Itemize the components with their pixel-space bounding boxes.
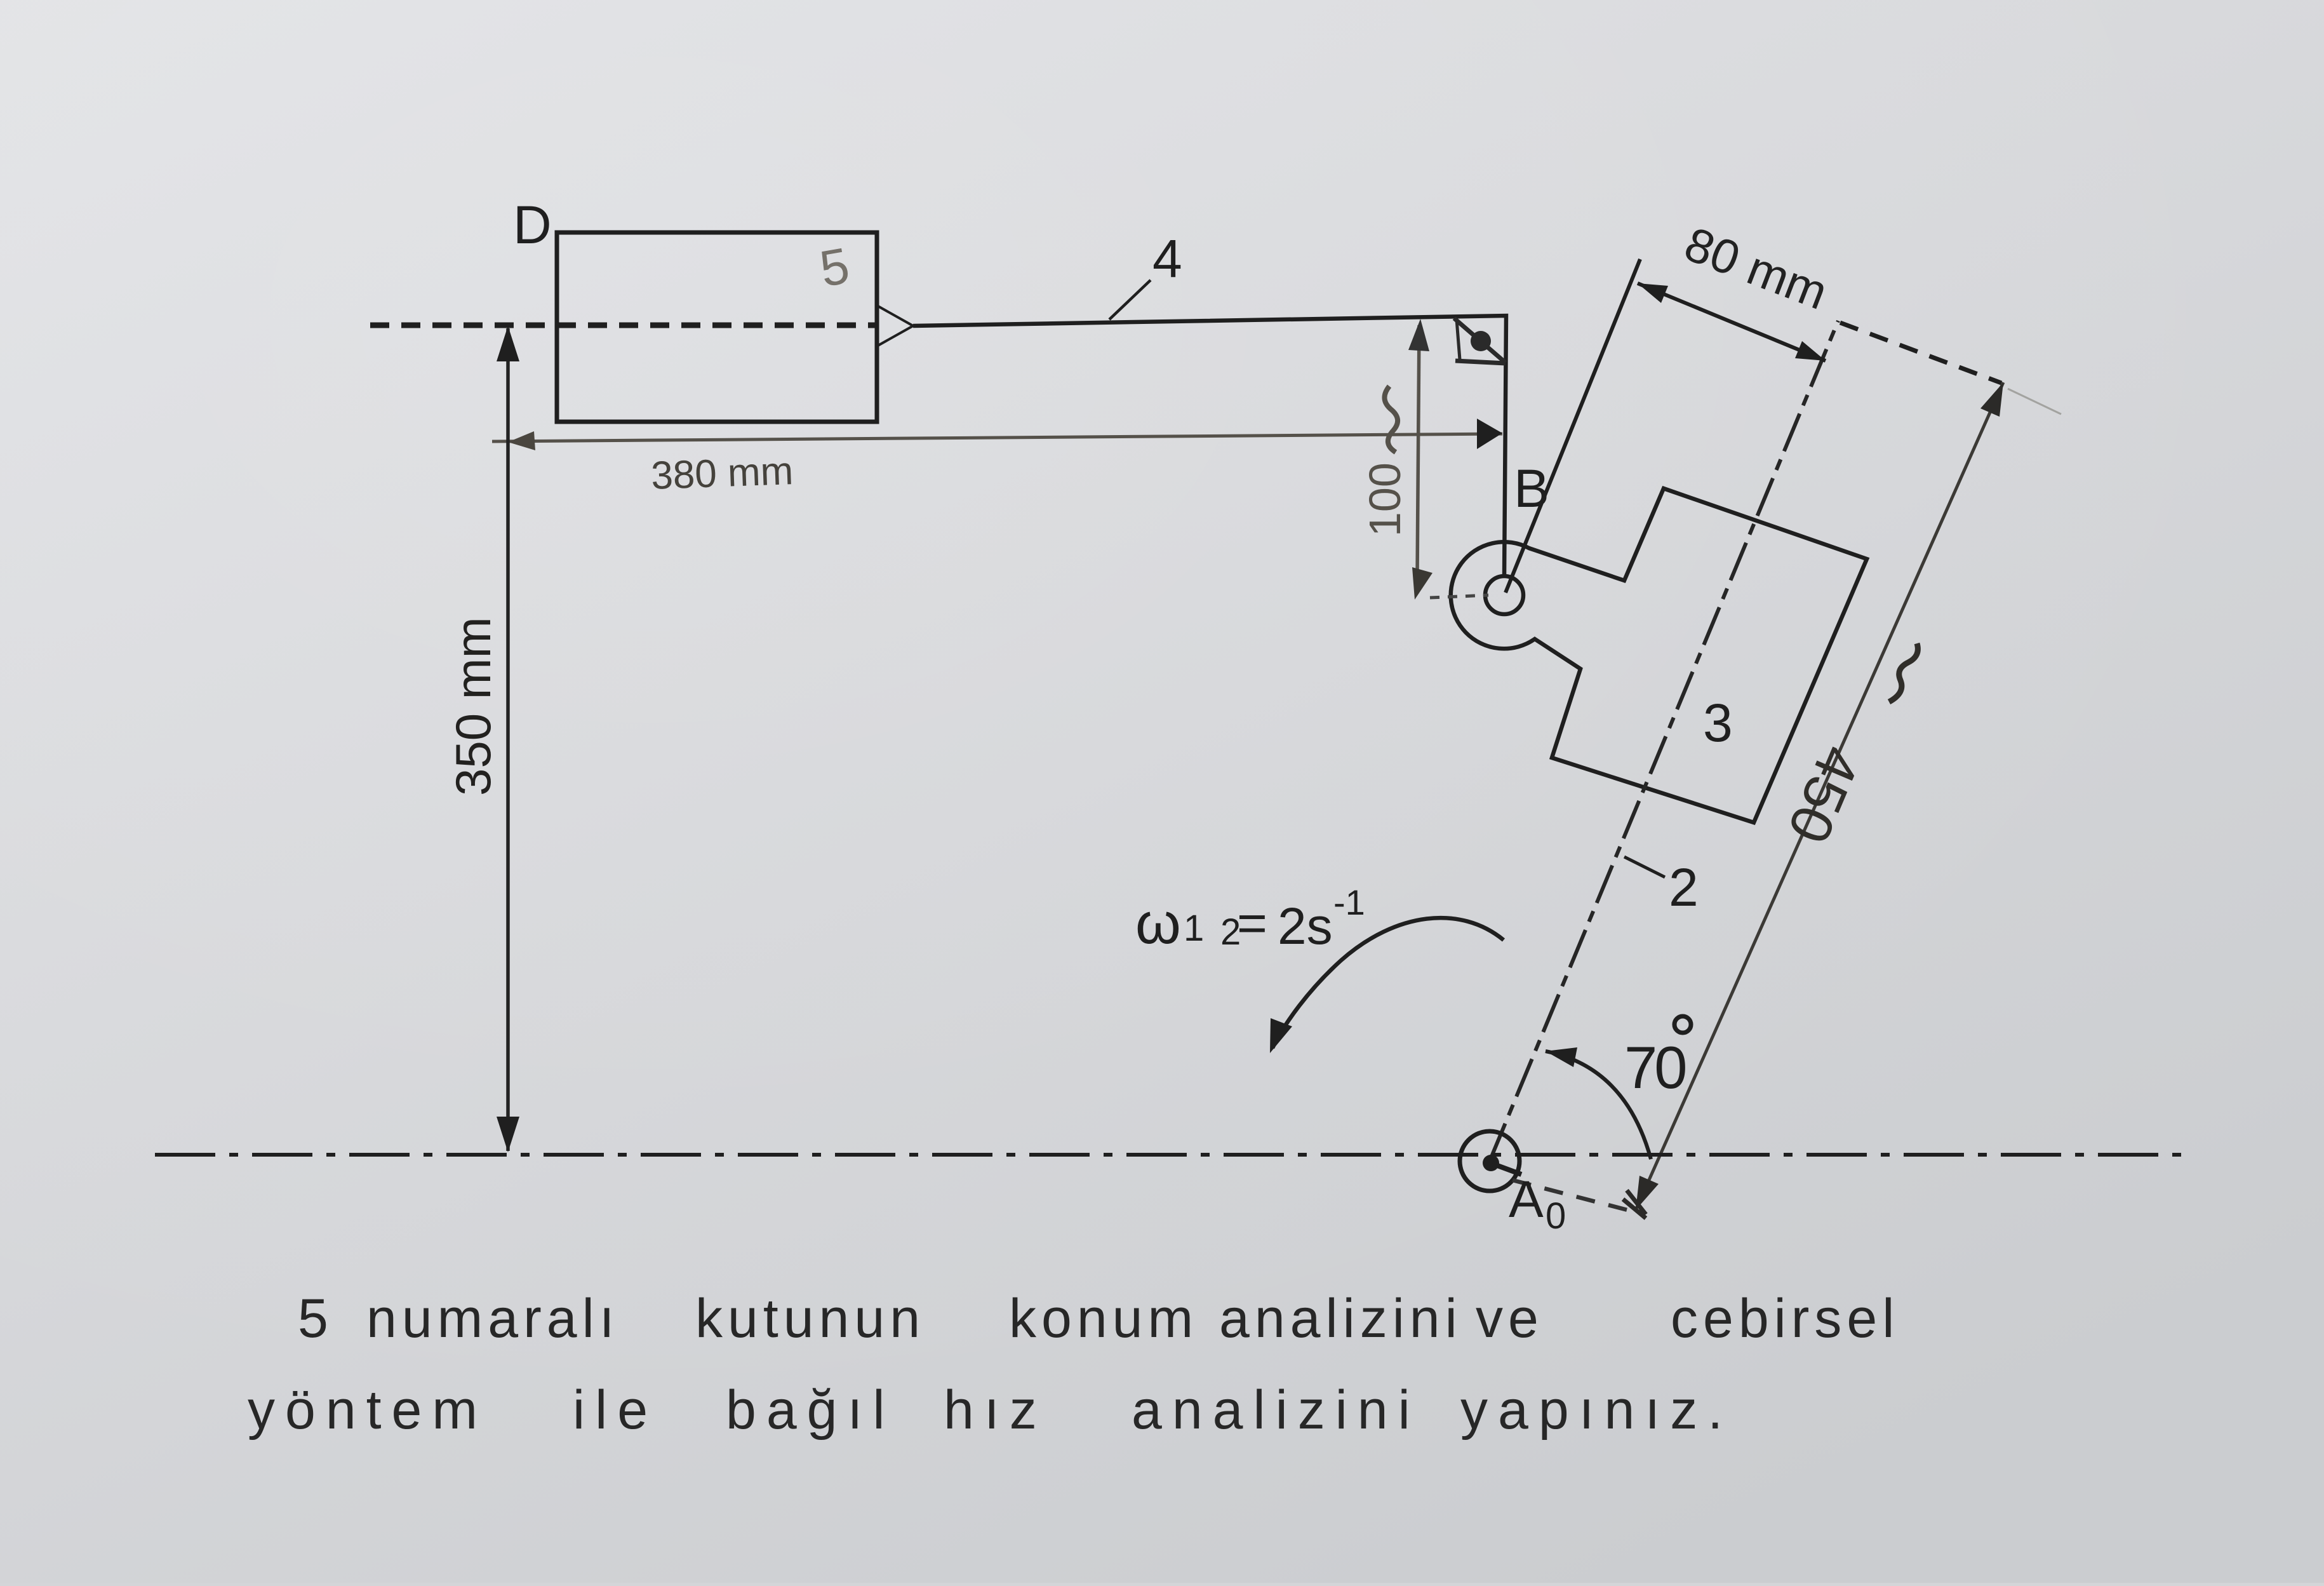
svg-text:4: 4	[1152, 229, 1182, 288]
svg-text:kutunun: kutunun	[695, 1288, 925, 1349]
svg-text:5: 5	[298, 1288, 333, 1349]
svg-text:bağıl: bağıl	[726, 1380, 895, 1441]
svg-text:analizini: analizini	[1219, 1288, 1462, 1349]
svg-text:1: 1	[1184, 908, 1204, 949]
svg-text:ile: ile	[573, 1380, 658, 1441]
svg-text:numaralı: numaralı	[366, 1288, 620, 1349]
svg-text:3: 3	[1703, 693, 1733, 753]
svg-text:cebirsel: cebirsel	[1671, 1288, 1899, 1349]
svg-text:yöntem: yöntem	[248, 1380, 488, 1441]
svg-text:hız: hız	[944, 1380, 1047, 1441]
svg-text:380 mm: 380 mm	[650, 449, 794, 498]
svg-text:D: D	[513, 195, 552, 255]
svg-text:A: A	[1509, 1171, 1544, 1228]
svg-text:analizini: analizini	[1132, 1380, 1420, 1441]
svg-text:konum: konum	[1009, 1288, 1198, 1349]
svg-text:0: 0	[1546, 1195, 1566, 1237]
svg-text:ve: ve	[1476, 1288, 1544, 1349]
svg-text:350 mm: 350 mm	[445, 617, 501, 796]
svg-text:=: =	[1237, 894, 1267, 952]
svg-text:-1: -1	[1333, 882, 1365, 922]
svg-text:ω: ω	[1135, 891, 1181, 956]
svg-text:B: B	[1514, 459, 1549, 518]
svg-text:2s: 2s	[1278, 897, 1333, 955]
svg-text:2: 2	[1669, 857, 1699, 917]
svg-text:yapınız.: yapınız.	[1460, 1380, 1733, 1441]
svg-text:70: 70	[1624, 1034, 1685, 1101]
svg-text:100: 100	[1360, 462, 1410, 537]
